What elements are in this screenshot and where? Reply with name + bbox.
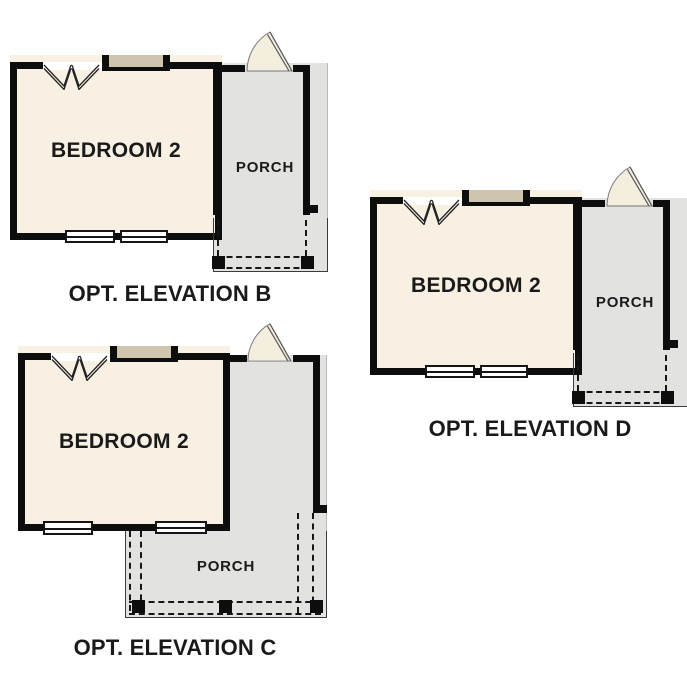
porch-wall-stub <box>313 505 327 513</box>
window-sash-line <box>427 371 473 373</box>
porch-post <box>301 256 314 269</box>
steps-dash-right <box>665 355 667 391</box>
window-sash-line <box>45 528 91 530</box>
porch-post <box>132 600 145 613</box>
steps-dash-right <box>305 220 307 256</box>
steps-dash-bottom-2 <box>217 267 309 269</box>
plan-elevation-d: BEDROOM 2 PORCH OPT. ELEVATION D <box>370 163 687 448</box>
window-sash-line <box>157 527 205 529</box>
door-swing-icon <box>236 320 300 362</box>
steps-dash-bottom-2 <box>577 402 669 404</box>
porch-wall-right <box>663 200 670 350</box>
porch-post <box>310 600 323 613</box>
header-bar <box>469 190 523 202</box>
plan-caption: OPT. ELEVATION D <box>370 416 687 442</box>
porch-post <box>219 600 232 613</box>
porch-label: PORCH <box>573 293 677 311</box>
porch-roof-dash-bottom-2 <box>129 613 321 615</box>
bedroom-label: BEDROOM 2 <box>370 204 582 368</box>
plan-caption: OPT. ELEVATION C <box>10 635 340 661</box>
header-bar <box>117 346 171 358</box>
window-sash-line <box>482 371 526 373</box>
porch-label: PORCH <box>213 158 317 176</box>
porch-wall-stub <box>663 340 678 348</box>
porch-post <box>212 256 225 269</box>
header-bar <box>109 55 163 67</box>
porch-wall-stub <box>303 205 318 213</box>
steps-dash-bottom-1 <box>217 256 309 258</box>
porch-label: PORCH <box>125 557 327 575</box>
bedroom-label: BEDROOM 2 <box>10 69 222 233</box>
porch-post <box>572 391 585 404</box>
bedroom-label: BEDROOM 2 <box>18 360 230 524</box>
window-sash-line <box>67 236 113 238</box>
door-swing-icon <box>236 28 300 72</box>
window-sash-line <box>122 236 166 238</box>
door-swing-icon <box>596 163 660 207</box>
steps-dash-bottom-1 <box>577 391 669 393</box>
plan-elevation-c: BEDROOM 2 PORCH OPT. ELEVATION C <box>10 320 345 665</box>
plan-caption: OPT. ELEVATION B <box>10 281 330 307</box>
porch-wall-right <box>313 355 320 508</box>
porch-wall-right <box>303 65 310 215</box>
floorplan-canvas: BEDROOM 2 PORCH OPT. ELEVATION B <box>0 0 687 687</box>
porch-post <box>661 391 674 404</box>
plan-elevation-b: BEDROOM 2 PORCH OPT. ELEVATION B <box>10 28 330 313</box>
